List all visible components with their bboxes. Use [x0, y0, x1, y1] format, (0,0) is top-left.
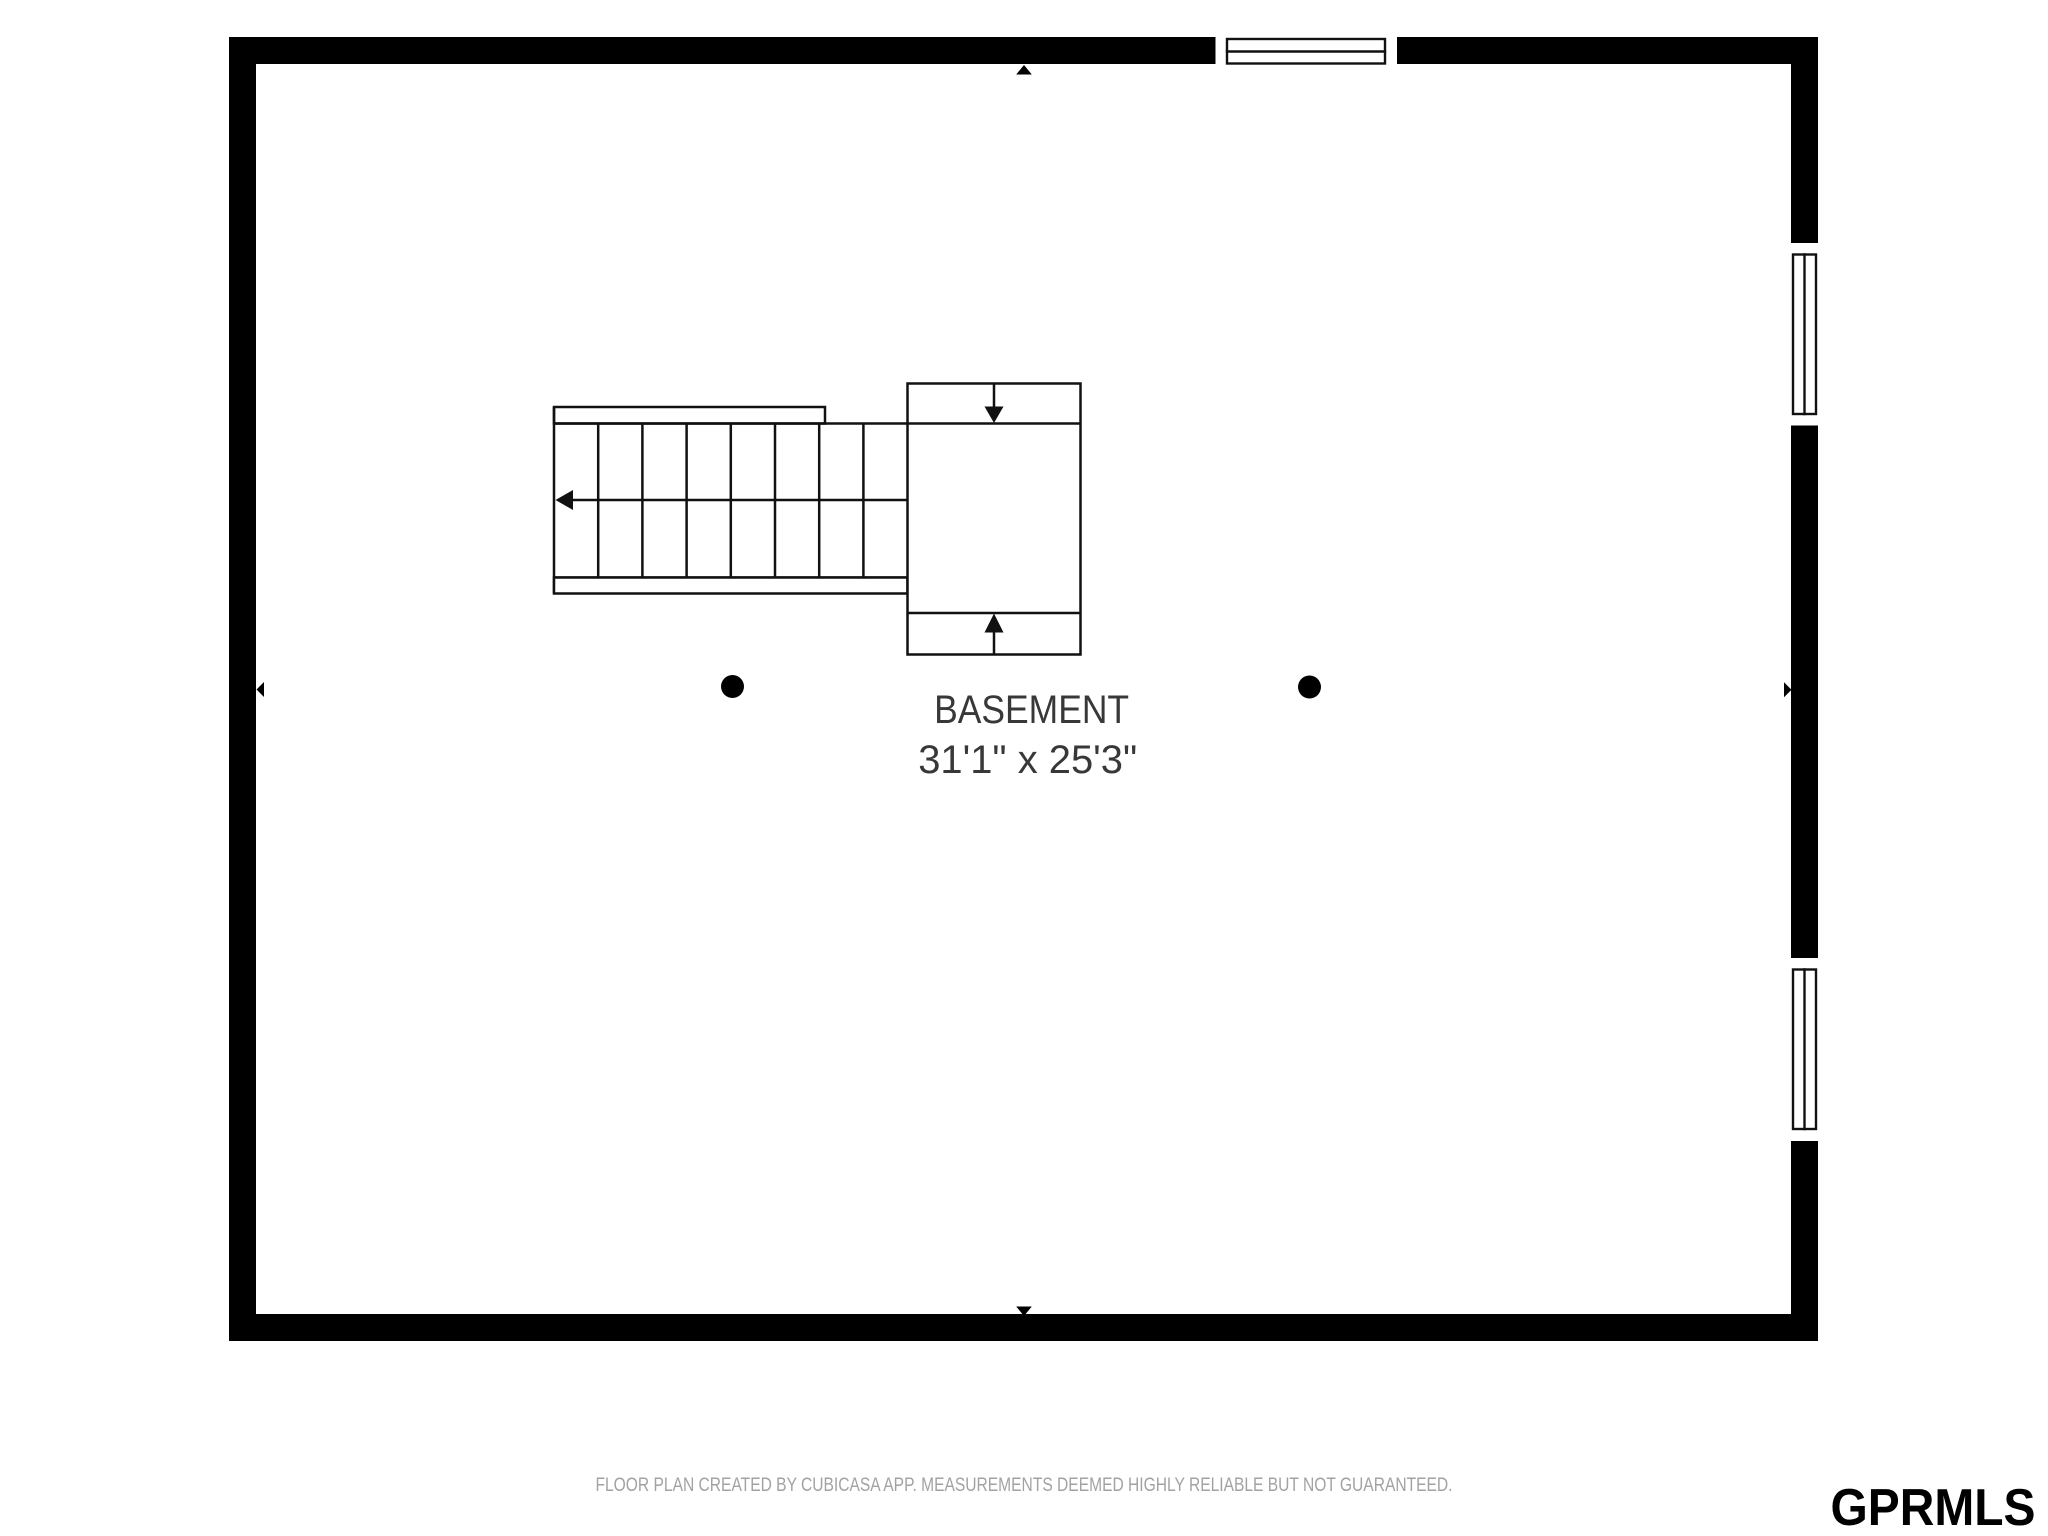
svg-text:BASEMENT: BASEMENT	[934, 688, 1129, 732]
svg-text:GPRMLS: GPRMLS	[1831, 1478, 2036, 1536]
svg-text:FLOOR PLAN CREATED BY CUBICASA: FLOOR PLAN CREATED BY CUBICASA APP. MEAS…	[596, 1475, 1453, 1496]
svg-text:31'1" x 25'3": 31'1" x 25'3"	[918, 738, 1137, 782]
